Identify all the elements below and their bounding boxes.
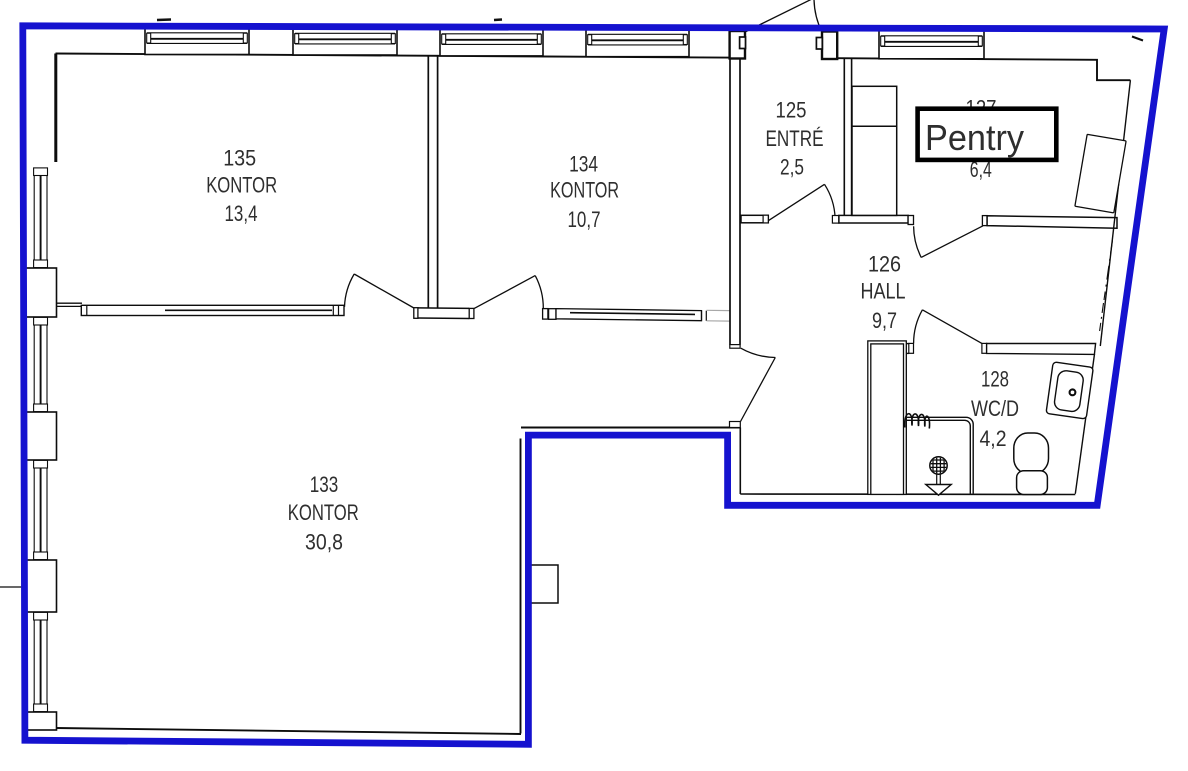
svg-text:133: 133 (310, 472, 339, 497)
svg-text:HALL: HALL (861, 279, 906, 304)
svg-text:KONTOR: KONTOR (206, 173, 277, 198)
svg-text:Pentry: Pentry (925, 117, 1024, 158)
svg-text:13,4: 13,4 (225, 201, 258, 226)
svg-text:134: 134 (569, 152, 598, 177)
svg-text:ENTRÉ: ENTRÉ (766, 126, 824, 151)
svg-text:KONTOR: KONTOR (550, 178, 619, 203)
svg-text:2,5: 2,5 (780, 155, 804, 180)
svg-text:128: 128 (981, 367, 1009, 392)
svg-text:KONTOR: KONTOR (288, 500, 359, 525)
svg-text:9,7: 9,7 (872, 308, 897, 333)
svg-text:WC/D: WC/D (971, 396, 1019, 421)
svg-text:30,8: 30,8 (305, 530, 343, 555)
svg-text:4,2: 4,2 (980, 426, 1007, 451)
svg-text:126: 126 (868, 252, 901, 277)
svg-text:125: 125 (776, 98, 807, 123)
svg-text:10,7: 10,7 (568, 207, 601, 232)
svg-text:135: 135 (223, 146, 256, 171)
